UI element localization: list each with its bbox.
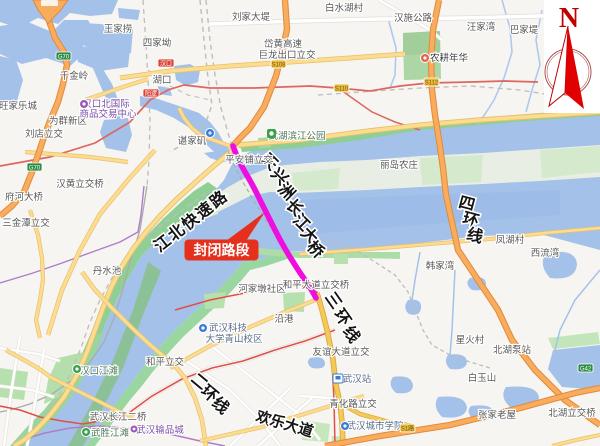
svg-text:农耕年华: 农耕年华 (430, 52, 469, 64)
svg-text:湖口: 湖口 (152, 75, 171, 86)
svg-text:巴家堤: 巴家堤 (510, 24, 539, 36)
svg-text:千金岭: 千金岭 (60, 70, 89, 82)
svg-text:府河大桥: 府河大桥 (5, 191, 44, 203)
svg-text:凤湖村: 凤湖村 (496, 234, 525, 246)
svg-text:S1路: S1路 (401, 425, 414, 433)
svg-text:武汉站: 武汉站 (343, 373, 372, 385)
svg-text:平安铺立交: 平安铺立交 (225, 154, 273, 166)
svg-text:北湖泵站: 北湖泵站 (493, 344, 532, 356)
svg-text:和平立交: 和平立交 (146, 356, 185, 368)
svg-text:G42: G42 (580, 367, 592, 373)
svg-text:汉施公路: 汉施公路 (394, 12, 433, 24)
svg-text:谌家矶: 谌家矶 (178, 135, 207, 147)
svg-text:武胜江滩: 武胜江滩 (91, 427, 130, 439)
svg-text:汉口: 汉口 (160, 60, 172, 68)
svg-text:三金潭立交: 三金潭立交 (2, 217, 50, 229)
svg-text:韩家湾: 韩家湾 (426, 260, 455, 272)
svg-text:河家墩社区: 河家墩社区 (238, 283, 286, 295)
svg-text:丽岛农庄: 丽岛农庄 (380, 159, 419, 171)
svg-text:汉黄立交桥: 汉黄立交桥 (56, 178, 104, 190)
svg-text:武汉长江二桥: 武汉长江二桥 (89, 411, 147, 423)
svg-text:张家老屋: 张家老屋 (478, 409, 516, 421)
svg-text:刘店立交: 刘店立交 (25, 128, 64, 140)
svg-text:青化路立交: 青化路立交 (329, 398, 377, 410)
svg-text:丹水池: 丹水池 (93, 265, 122, 277)
svg-text:友谊大道立交: 友谊大道立交 (312, 346, 370, 358)
svg-text:G70: G70 (29, 166, 41, 172)
svg-text:S110: S110 (335, 87, 349, 93)
svg-text:王家捞: 王家捞 (104, 23, 133, 35)
svg-text:S112: S112 (425, 81, 439, 87)
svg-text:武汉输品城: 武汉输品城 (136, 424, 184, 436)
svg-text:刘家大堤: 刘家大堤 (232, 11, 271, 23)
svg-text:S108: S108 (271, 63, 286, 69)
svg-text:汪家湾: 汪家湾 (467, 21, 496, 33)
svg-text:N: N (559, 3, 579, 34)
svg-text:武湖滨江公园: 武湖滨江公园 (268, 130, 325, 142)
svg-text:白玉山: 白玉山 (468, 372, 497, 384)
svg-text:商品交易中心: 商品交易中心 (79, 108, 137, 120)
svg-text:沿港: 沿港 (274, 313, 294, 325)
svg-text:白水湖村: 白水湖村 (325, 2, 364, 14)
svg-text:西流湾: 西流湾 (531, 247, 560, 259)
svg-text:汉口江滩: 汉口江滩 (80, 365, 119, 377)
svg-text:和平大道立交桥: 和平大道立交桥 (283, 279, 350, 291)
svg-text:大学青山校区: 大学青山校区 (205, 333, 263, 345)
svg-text:武汉科技: 武汉科技 (209, 322, 248, 334)
svg-text:武汉城市学院: 武汉城市学院 (346, 420, 404, 432)
svg-text:星火村: 星火村 (456, 334, 485, 346)
svg-text:四家坳: 四家坳 (143, 37, 172, 49)
svg-text:封闭路段: 封闭路段 (194, 242, 250, 258)
svg-text:阳逻: 阳逻 (145, 90, 157, 98)
svg-text:巨龙出口立交: 巨龙出口立交 (258, 49, 316, 61)
svg-text:岱黄高速: 岱黄高速 (264, 38, 303, 50)
svg-text:G70: G70 (58, 55, 70, 61)
svg-text:北湖立交桥: 北湖立交桥 (548, 407, 596, 419)
svg-text:旺家乐城: 旺家乐城 (0, 100, 37, 112)
